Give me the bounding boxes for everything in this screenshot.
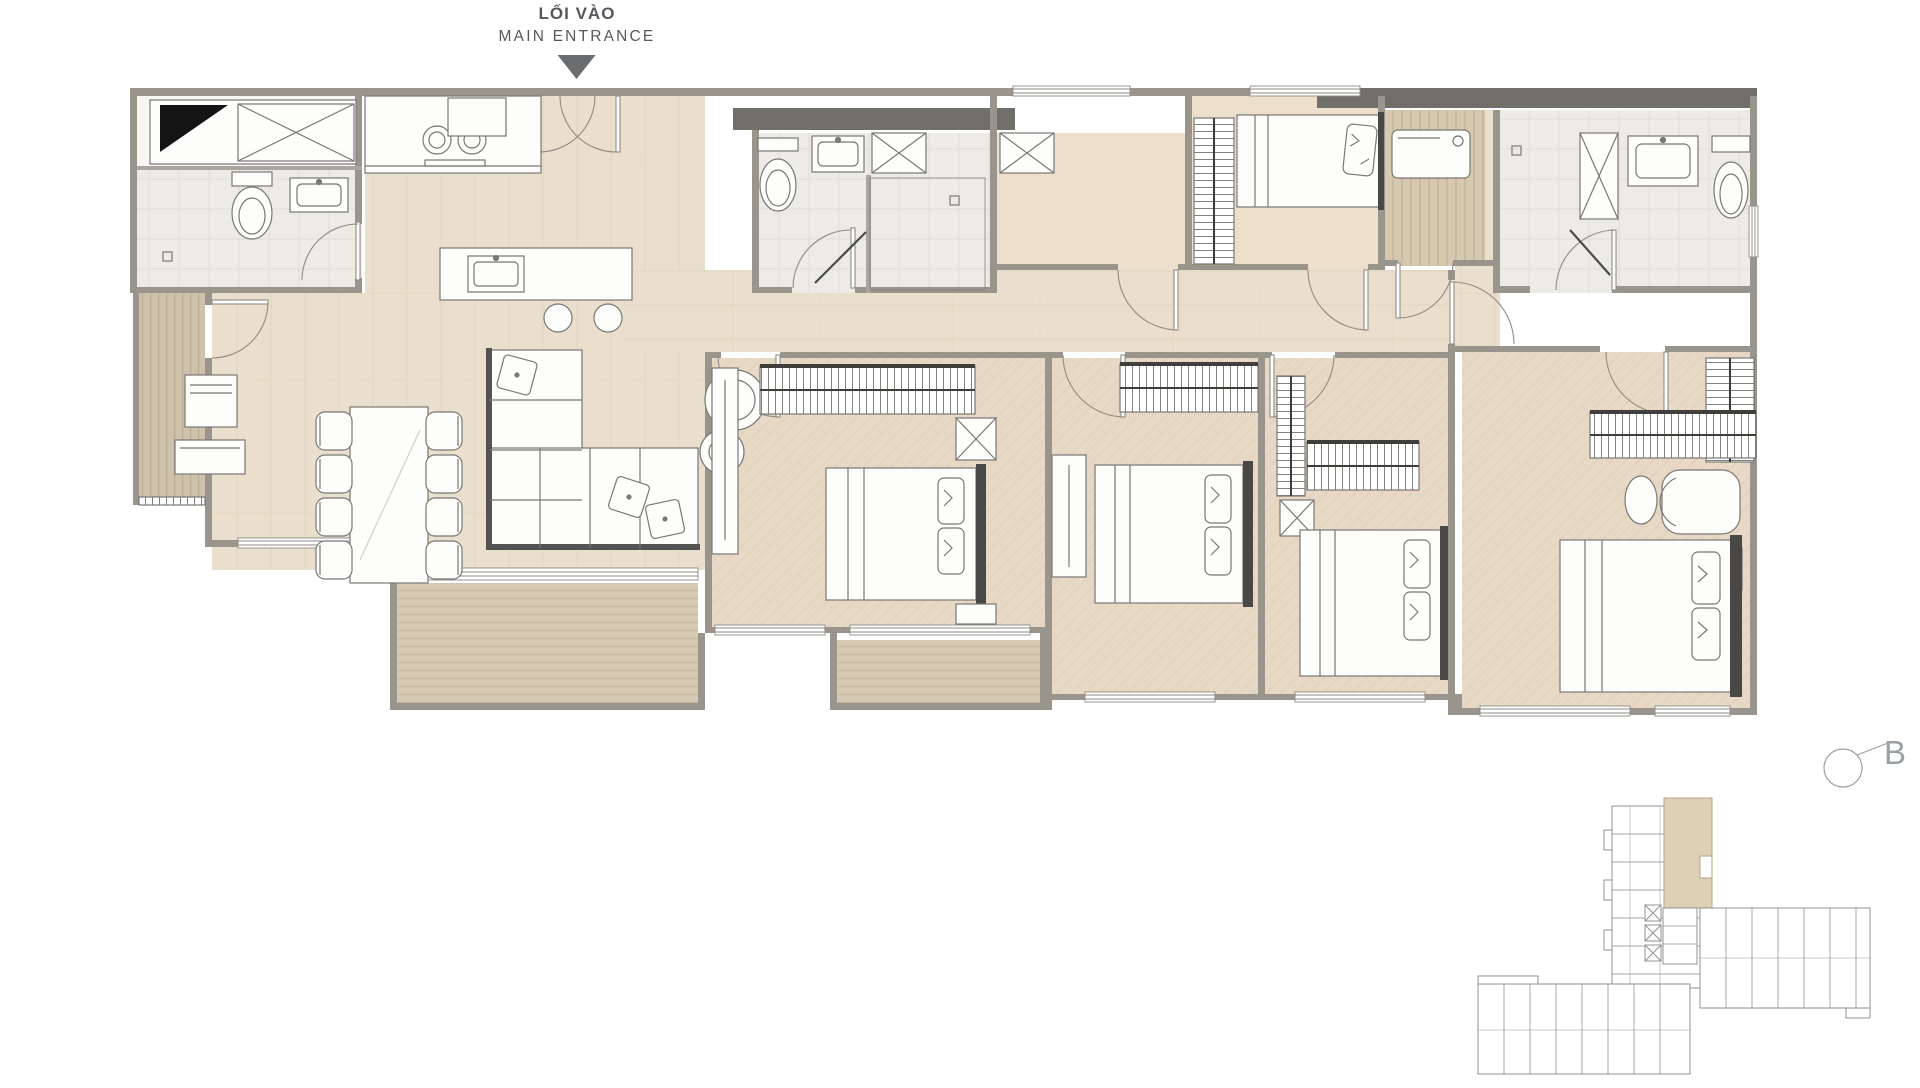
balcony-middle-floor xyxy=(837,640,1040,703)
bar-stool xyxy=(594,304,622,332)
balcony-living-floor xyxy=(397,583,698,703)
floorplan-page: LỐI VÀO MAIN ENTRANCE xyxy=(0,0,1920,1088)
window-bedroom1-a xyxy=(715,625,825,635)
floor-plan xyxy=(0,0,1920,1088)
key-plan-highlighted-unit xyxy=(1664,798,1712,908)
window-bathroom-3 xyxy=(1749,206,1758,257)
window-bedroom1-b xyxy=(850,625,1030,635)
key-plan-bottom-wing xyxy=(1478,976,1690,1074)
nightstand xyxy=(956,604,996,624)
key-plan-core xyxy=(1645,905,1697,964)
window-bedroom-small xyxy=(1250,86,1360,96)
ottoman xyxy=(1625,476,1657,524)
window-bedroom2 xyxy=(1085,692,1215,702)
key-plan xyxy=(1478,798,1870,1074)
window-master-a xyxy=(1480,706,1630,716)
window-master-b xyxy=(1655,706,1730,716)
key-plan-right-wing xyxy=(1700,908,1870,1018)
section-marker-circle xyxy=(1824,749,1862,787)
window-den xyxy=(1013,86,1130,96)
bar-stool xyxy=(544,304,572,332)
washer xyxy=(1392,130,1470,178)
corridor-floor xyxy=(622,270,1455,352)
den-closet xyxy=(1000,133,1054,173)
section-marker-label: B xyxy=(1884,736,1907,769)
utility-fixtures xyxy=(1392,130,1470,178)
kitchen-counter xyxy=(365,96,541,173)
window-bedroom3 xyxy=(1295,692,1425,702)
closet-top-left xyxy=(150,100,356,164)
section-marker xyxy=(1824,743,1888,787)
